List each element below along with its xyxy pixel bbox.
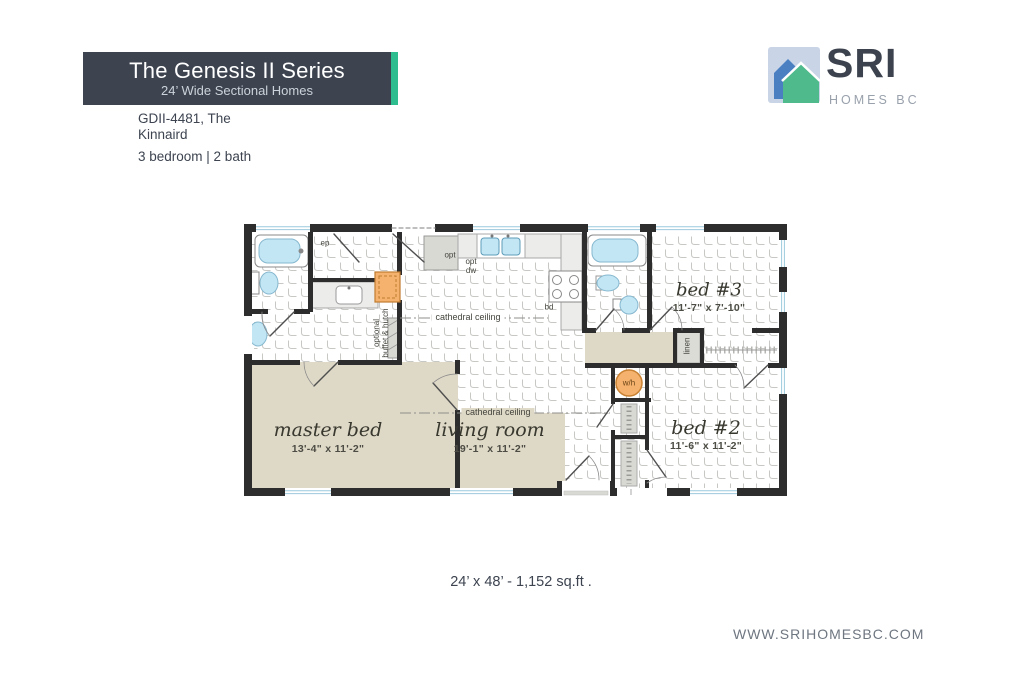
room-dims-master-bed: 13'-4" x 11'-2"	[292, 443, 365, 455]
model-name-line2: Kinnaird	[138, 127, 188, 142]
room-dims-bed2: 11'-6" x 11'-2"	[670, 440, 742, 452]
front-door	[557, 481, 615, 496]
room-label-master-bed: master bed	[274, 419, 383, 441]
room-label-bed2: bed #2	[671, 417, 741, 439]
room-label-living-room: living room	[435, 419, 544, 441]
bed-bath-specs: 3 bedroom | 2 bath	[138, 149, 251, 164]
room-label-bed3: bed #3	[676, 280, 742, 301]
overall-dimensions: 24’ x 48’ - 1,152 sq.ft .	[450, 574, 592, 590]
bath-sink-main	[597, 275, 619, 291]
room-dims-bed3: 11'-7" x 7'-10"	[673, 302, 746, 314]
series-subtitle: 24’ Wide Sectional Homes	[161, 84, 313, 98]
buffet-line2: buffet & hutch	[382, 308, 391, 357]
kitchen-sink-basin-right	[502, 238, 520, 255]
logo-tagline: HOMES BC	[829, 93, 920, 107]
website-url: WWW.SRIHOMESBC.COM	[733, 626, 924, 642]
bd-label: bd	[545, 304, 554, 313]
opt-door-label: opt	[444, 252, 455, 261]
toilet-ensuite	[260, 272, 278, 294]
buffet-hutch-label: optional buffet & hutch	[373, 308, 391, 357]
cathedral-ceiling-label-living: cathedral ceiling	[461, 408, 534, 418]
logo-house-icon	[768, 47, 820, 103]
series-header: The Genesis II Series 24’ Wide Sectional…	[83, 52, 391, 105]
stove	[549, 271, 582, 302]
logo-text: SRI	[826, 40, 897, 87]
model-name: GDII-4481, The Kinnaird	[138, 111, 231, 143]
water-heater-label: w/h	[623, 379, 635, 388]
room-dims-living-room: 19'-1" x 11'-2"	[454, 443, 527, 455]
hallway-floor	[585, 332, 673, 363]
cathedral-ceiling-label-kitchen: cathedral ceiling	[431, 313, 504, 323]
series-title: The Genesis II Series	[129, 59, 345, 83]
flyer-page: The Genesis II Series 24’ Wide Sectional…	[0, 0, 1024, 683]
opt-dw-line2: dw	[465, 267, 476, 276]
toilet-main	[620, 296, 638, 314]
header-accent-bar	[391, 52, 398, 105]
linen-label: linen	[684, 338, 693, 355]
model-name-line1: GDII-4481, The	[138, 111, 231, 126]
electrical-panel-label: ep	[321, 240, 330, 249]
toilet-tank-ensuite	[251, 272, 259, 294]
opt-dishwasher-label: opt dw	[465, 258, 476, 276]
kitchen-sink-basin-left	[481, 238, 499, 255]
pantry-cabinet	[375, 272, 400, 302]
